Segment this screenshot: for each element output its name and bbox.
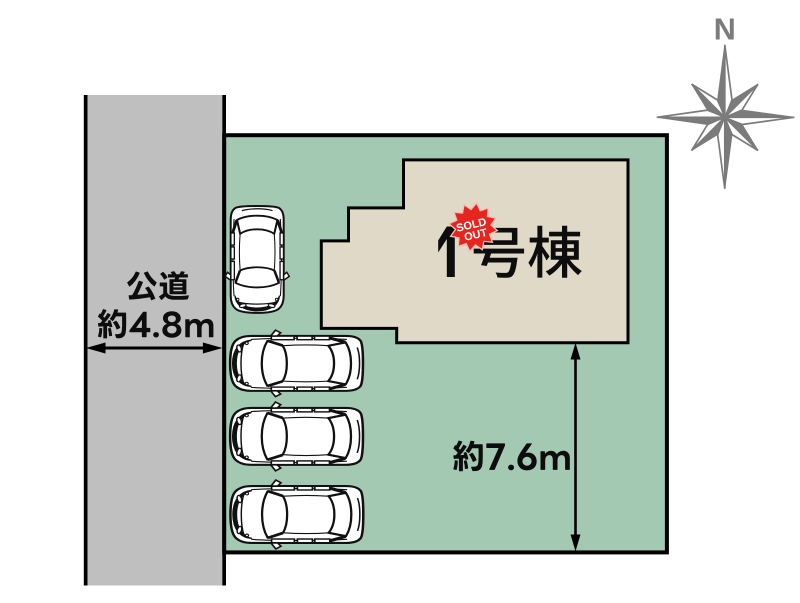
svg-text:N: N [714, 13, 736, 47]
